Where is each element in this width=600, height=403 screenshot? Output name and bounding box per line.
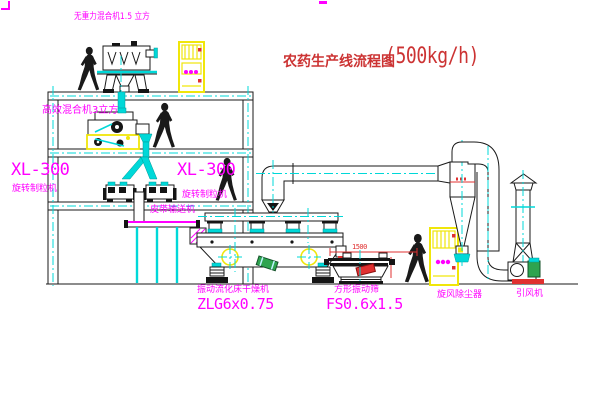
sieve-name-label: 方形振动筛: [334, 286, 379, 295]
worker-icon: [153, 103, 175, 148]
drop-chute: [134, 192, 144, 223]
dryer-name-label: 振动流化床干燥机: [197, 286, 269, 295]
mixer2-label: 高效混合机3立方: [42, 106, 118, 116]
granulator-left-machine: [103, 182, 137, 202]
dryer-exhaust-duct: [256, 160, 452, 214]
control-cabinet: [179, 42, 204, 92]
cad-flow-diagram: 无重力混合机1.5 立方 高效混合机3立方 XL-300 旋转制粒机 XL-30…: [0, 0, 600, 403]
dryer-model-label: ZLG6x0.75: [197, 297, 274, 312]
belt-conveyor-machine: [124, 220, 206, 283]
sieve-model-label: FS0.6x1.5: [326, 297, 403, 312]
fluid-bed-dryer-machine: [197, 208, 346, 283]
conveyor-label: 皮带输送机: [150, 206, 195, 215]
control-cabinet: [430, 228, 458, 285]
granulator-right-model: XL-300: [177, 162, 235, 179]
sieve-dimension-label: 1500: [352, 244, 367, 251]
mixer1-label: 无重力混合机1.5 立方: [74, 13, 150, 22]
corner-mark: [1, 1, 327, 9]
cyclone-band-marks: [456, 178, 466, 181]
induced-draft-fan-machine: [508, 258, 544, 284]
granulator-right-name: 旋转制粒机: [182, 191, 227, 200]
diagram-title-capacity: (500kg/h): [385, 46, 479, 68]
fan-label: 引风机: [516, 290, 543, 299]
diagram-title: 农药生产线流程图: [283, 55, 395, 69]
y-branch-chute: [122, 157, 157, 179]
worker-icon: [405, 234, 429, 283]
worker-icon: [78, 47, 100, 91]
granulator-right-machine: [143, 182, 177, 202]
granulator-left-model: XL-300: [11, 162, 69, 179]
granulator-left-name: 旋转制粒机: [12, 185, 57, 194]
cyclone-label: 旋风除尘器: [437, 291, 482, 300]
